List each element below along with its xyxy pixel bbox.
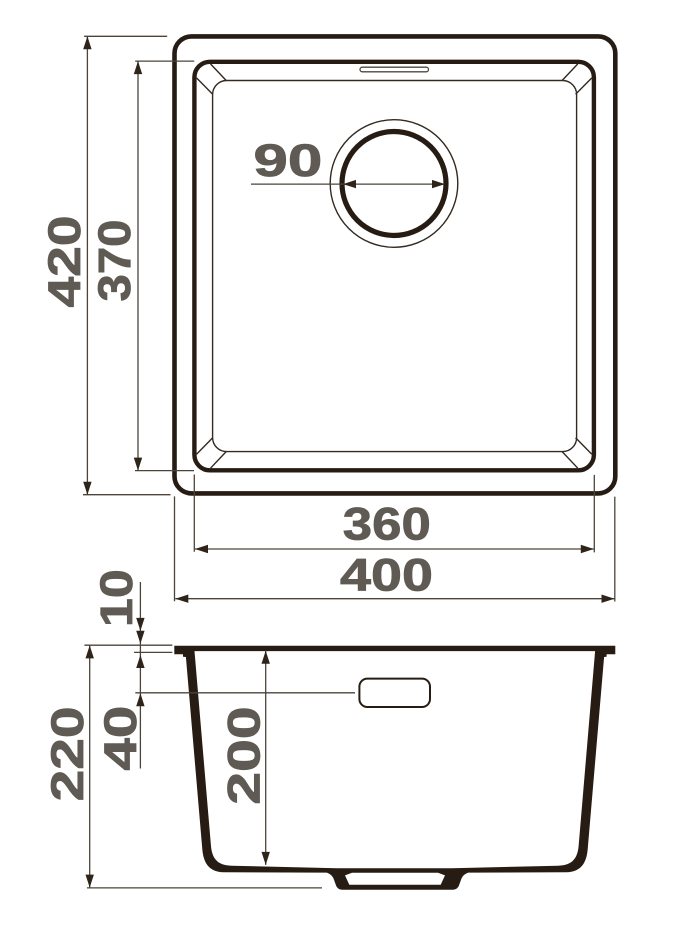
- svg-text:10: 10: [91, 569, 142, 627]
- svg-text:360: 360: [343, 499, 431, 550]
- svg-text:420: 420: [39, 216, 90, 308]
- svg-text:400: 400: [340, 550, 433, 601]
- svg-text:370: 370: [89, 220, 140, 302]
- svg-text:220: 220: [42, 706, 93, 801]
- svg-text:40: 40: [95, 706, 146, 771]
- svg-text:200: 200: [219, 706, 270, 805]
- svg-text:90: 90: [253, 135, 322, 186]
